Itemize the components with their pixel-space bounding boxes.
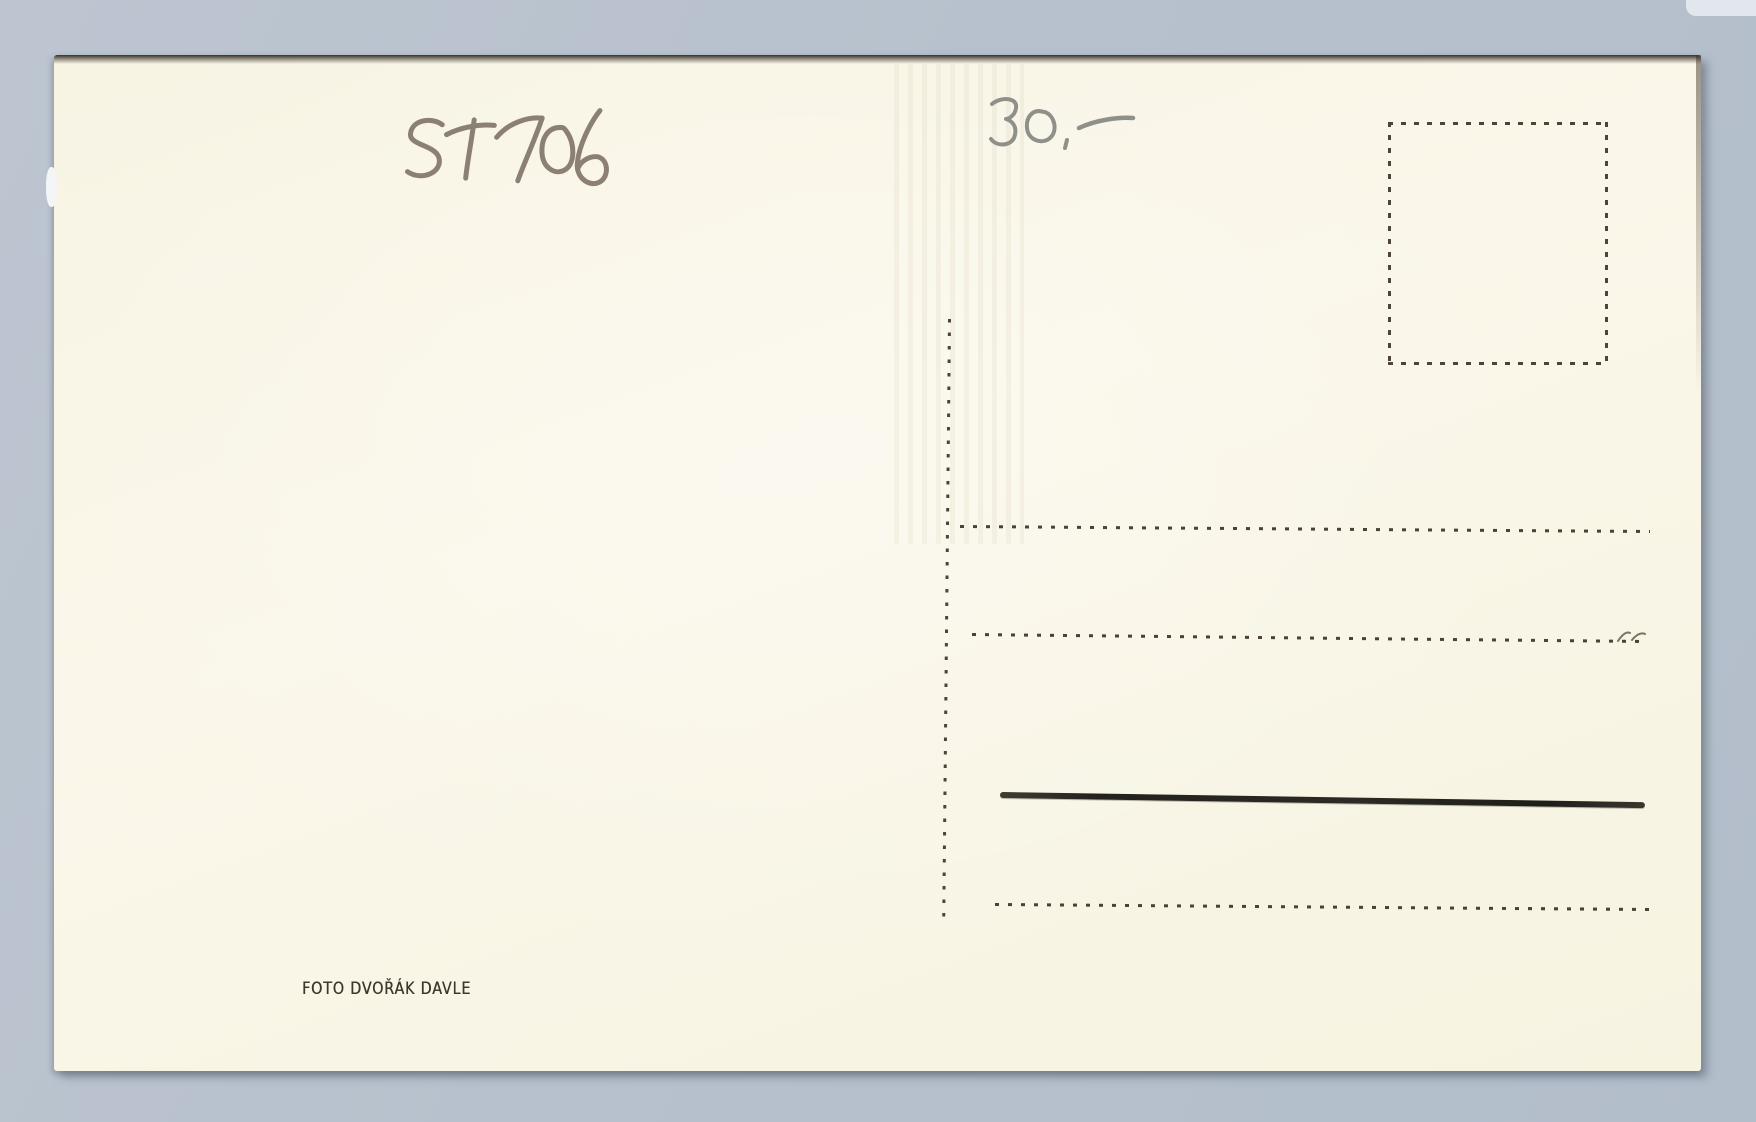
postcard-back: FOTO DVOŘÁK DAVLE [54,55,1701,1071]
handwritten-price [982,88,1145,152]
address-line-dotted-2 [972,633,1646,643]
publisher-imprint: FOTO DVOŘÁK DAVLE [302,979,471,999]
address-line-dotted-3 [995,903,1650,911]
address-line-dotted-1 [960,525,1650,533]
pencil-squiggle [1614,627,1650,645]
photo-background: FOTO DVOŘÁK DAVLE [0,0,1756,1122]
address-line-solid-marker [1000,792,1645,808]
divider-line-vertical [942,319,951,919]
card-right-edge-shadow [1696,55,1701,395]
card-top-edge-shadow [54,55,1701,64]
background-light-patch [1686,0,1756,16]
handwritten-catalog-number [402,106,616,196]
stamp-box [1388,122,1608,365]
card-left-edge-notch [46,167,57,207]
